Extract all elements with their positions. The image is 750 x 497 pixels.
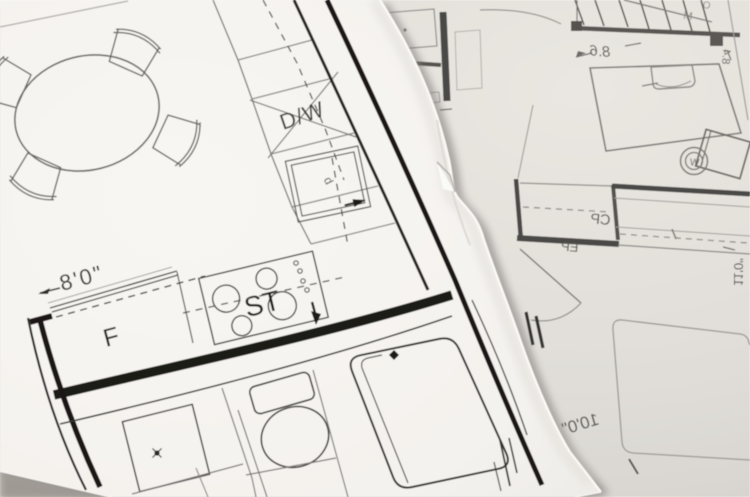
- svg-text:CP: CP: [590, 211, 611, 229]
- svg-text:11'0": 11'0": [731, 258, 746, 286]
- svg-text:8.6: 8.6: [588, 42, 611, 61]
- svg-text:8.4: 8.4: [719, 48, 732, 64]
- svg-text:W: W: [689, 157, 700, 169]
- svg-text:M: M: [682, 10, 693, 23]
- svg-text:EP: EP: [560, 239, 579, 255]
